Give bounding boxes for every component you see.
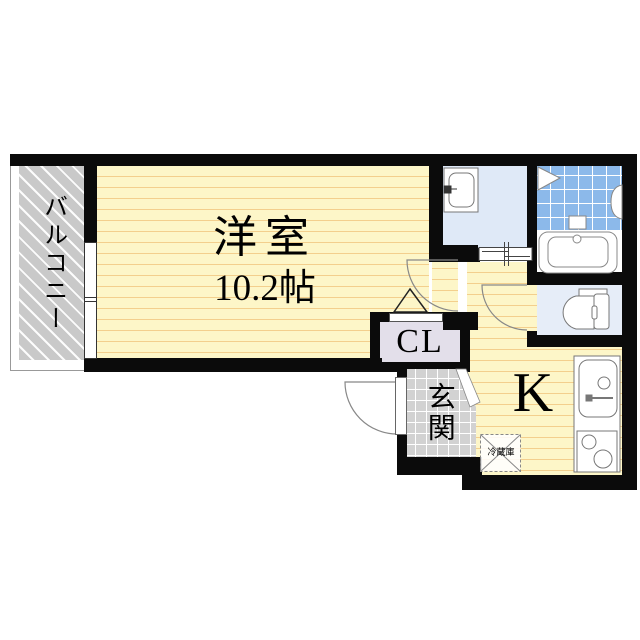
wall-room-bottom bbox=[84, 358, 382, 372]
wall-bath-west bbox=[527, 154, 537, 285]
entrance-door-arc bbox=[345, 382, 397, 434]
entrance-door-leaf bbox=[396, 378, 407, 435]
wall-washroom-bottom bbox=[429, 248, 480, 262]
western-room-nook-floor bbox=[432, 258, 458, 312]
wall-bath-toilet-divider bbox=[527, 272, 622, 285]
wall-entrance-stub bbox=[397, 368, 407, 380]
wall-right bbox=[622, 154, 637, 490]
closet-label: CL bbox=[396, 324, 443, 360]
refrigerator-label: 冷蔵庫 bbox=[481, 446, 521, 460]
western-room-size-label: 10.2帖 bbox=[140, 266, 390, 312]
wall-balcony-upper bbox=[84, 166, 97, 243]
wall-kitchen-bottom bbox=[462, 475, 637, 490]
balcony-label: バルコニー bbox=[19, 170, 85, 358]
bathtub-area bbox=[537, 230, 622, 272]
kitchen-label: K bbox=[503, 362, 563, 424]
washroom-floor bbox=[443, 166, 527, 248]
bathroom-tile-floor bbox=[537, 162, 622, 230]
wall-toilet-bottom bbox=[527, 335, 622, 347]
western-room-label: 洋室 bbox=[140, 212, 390, 264]
wall-entrance-left bbox=[397, 433, 407, 459]
wall-hall-block bbox=[443, 312, 478, 330]
wall-entrance-bottom bbox=[397, 457, 482, 475]
floor-plan: CL bbox=[0, 0, 640, 640]
entrance-label: 玄関 bbox=[408, 372, 470, 454]
toilet-room-floor bbox=[537, 285, 622, 335]
closet-door bbox=[389, 313, 443, 322]
wall-top bbox=[10, 154, 637, 166]
